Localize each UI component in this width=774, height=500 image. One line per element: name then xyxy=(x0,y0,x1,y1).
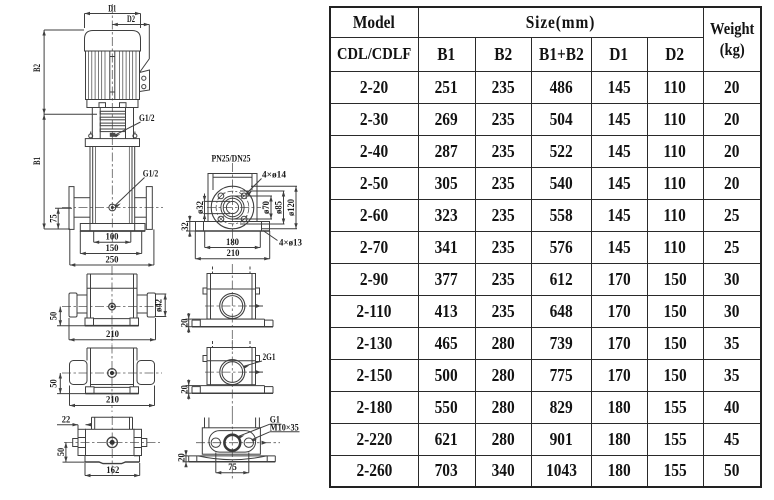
svg-text:20: 20 xyxy=(181,318,191,327)
svg-text:150: 150 xyxy=(106,244,119,254)
svg-text:100: 100 xyxy=(106,232,119,242)
svg-text:162: 162 xyxy=(106,466,119,476)
svg-text:B2: B2 xyxy=(33,64,43,72)
svg-text:180: 180 xyxy=(226,238,239,248)
svg-text:210: 210 xyxy=(106,396,119,406)
svg-text:2G1: 2G1 xyxy=(263,353,276,363)
svg-text:20: 20 xyxy=(181,385,191,394)
svg-text:50: 50 xyxy=(50,379,60,388)
svg-text:G1/2: G1/2 xyxy=(143,170,159,180)
svg-text:50: 50 xyxy=(57,448,67,457)
svg-text:4×ø14: 4×ø14 xyxy=(262,171,286,181)
svg-text:50: 50 xyxy=(50,312,60,321)
svg-text:G1/2: G1/2 xyxy=(139,114,155,124)
svg-text:4×ø13: 4×ø13 xyxy=(279,239,302,249)
svg-text:20: 20 xyxy=(178,453,188,462)
svg-text:PN25/DN25: PN25/DN25 xyxy=(212,155,251,165)
svg-text:250: 250 xyxy=(106,256,119,266)
svg-text:D2: D2 xyxy=(127,15,135,25)
svg-text:75: 75 xyxy=(228,463,237,473)
svg-text:ø42: ø42 xyxy=(154,299,164,312)
svg-text:ø120: ø120 xyxy=(287,199,297,216)
svg-text:210: 210 xyxy=(106,330,119,340)
svg-text:75: 75 xyxy=(50,214,60,223)
svg-text:32: 32 xyxy=(181,222,191,231)
svg-text:ø70: ø70 xyxy=(262,201,272,214)
svg-text:B1: B1 xyxy=(33,157,43,165)
svg-text:ø85: ø85 xyxy=(275,201,285,214)
svg-text:22: 22 xyxy=(62,416,71,426)
svg-text:ø32: ø32 xyxy=(196,201,206,214)
svg-text:210: 210 xyxy=(227,249,240,259)
